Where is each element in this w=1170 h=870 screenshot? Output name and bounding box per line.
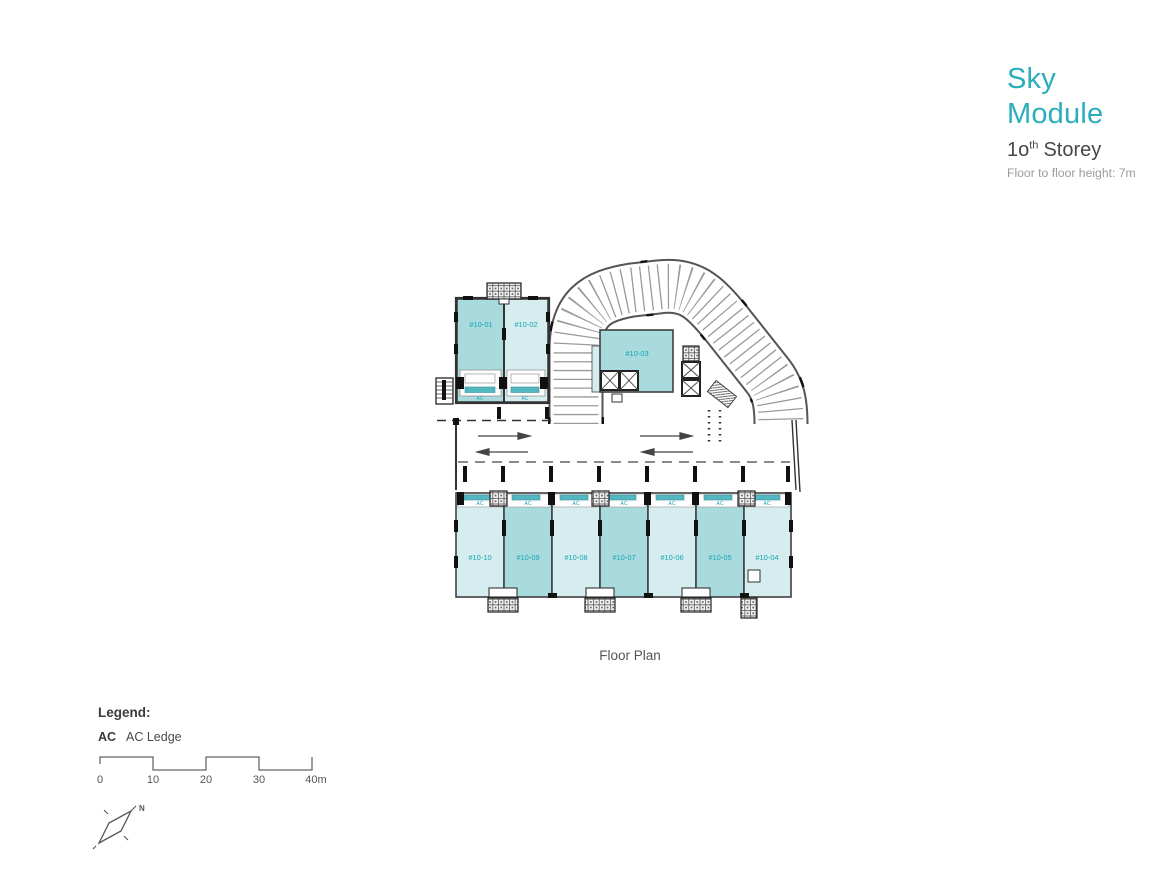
unit-label-10-01: #10-01 — [469, 320, 492, 329]
ac-ledge-label: AC — [522, 396, 529, 402]
top-block: AC AC #10-01 #10-02 — [436, 283, 550, 404]
scale-tick-30: 30 — [253, 774, 265, 786]
title-block: Sky Module 1othStorey Floor to floor hei… — [1007, 62, 1167, 180]
storey-title: 1othStorey — [1007, 139, 1167, 162]
ac-ledge-label: AC — [525, 501, 532, 507]
louver-grid — [592, 491, 609, 506]
legend-ac-label: AC Ledge — [126, 730, 182, 744]
lane-arrow-right — [478, 433, 530, 439]
scale-tick-10: 10 — [147, 774, 159, 786]
plan-caption: Floor Plan — [560, 648, 700, 663]
unit-10-09 — [504, 493, 552, 597]
scale-bar: 0 10 20 30 40m — [90, 748, 330, 790]
louver-grid — [487, 283, 521, 299]
louver-grid — [490, 491, 507, 506]
unit-label-10-09: #10-09 — [516, 553, 539, 562]
scale-tick-0: 0 — [97, 774, 103, 786]
lane-arrow-left-2 — [642, 449, 693, 455]
elevator-icon — [682, 362, 700, 378]
unit-label-10-08: #10-08 — [564, 553, 587, 562]
scale-tick-20: 20 — [200, 774, 212, 786]
ac-ledge-label: AC — [573, 501, 580, 507]
legend-title: Legend: — [98, 705, 151, 720]
unit-10-08 — [552, 493, 600, 597]
floor-height-note: Floor to floor height: 7m — [1007, 166, 1167, 180]
project-title-line1: Sky — [1007, 62, 1167, 97]
elevator-icon — [601, 371, 619, 390]
ac-ledge-label: AC — [477, 501, 484, 507]
bottom-block: AC AC AC AC AC AC AC #10-10 #10-09 #10- — [454, 491, 793, 618]
legend-ac-abbr: AC — [98, 730, 126, 744]
unit-label-10-06: #10-06 — [660, 553, 683, 562]
unit-label-10-05: #10-05 — [708, 553, 731, 562]
legend-item-ac: AC AC Ledge — [98, 730, 182, 744]
unit-10-10 — [456, 493, 504, 597]
unit-label-10-03: #10-03 — [625, 349, 648, 358]
stair-icon — [707, 380, 736, 407]
louver-grid — [488, 598, 518, 612]
louver-grid — [683, 346, 699, 361]
scale-tick-40: 40m — [305, 774, 326, 786]
unit-10-05 — [696, 493, 744, 597]
project-title-line2: Module — [1007, 97, 1167, 132]
elevator-icon — [682, 380, 700, 396]
elevator-icon — [620, 371, 638, 390]
unit-label-10-07: #10-07 — [612, 553, 635, 562]
floor-plan: AC AC #10-01 #10-02 #10-03 — [430, 250, 815, 625]
lane-arrow-left — [477, 449, 528, 455]
ac-ledge-label: AC — [477, 396, 484, 402]
lane-arrow-right-2 — [640, 433, 692, 439]
north-arrow-icon: N — [85, 798, 147, 856]
louver-grid — [741, 598, 757, 618]
unit-10-07 — [600, 493, 648, 597]
ac-ledge-label: AC — [621, 501, 628, 507]
ac-ledge-label: AC — [764, 501, 771, 507]
ac-ledge-label: AC — [669, 501, 676, 507]
louver-grid — [585, 598, 615, 612]
driveway — [437, 407, 800, 492]
ac-ledge-label: AC — [717, 501, 724, 507]
unit-label-10-02: #10-02 — [514, 320, 537, 329]
stair-icon — [436, 378, 453, 404]
unit-label-10-10: #10-10 — [468, 553, 491, 562]
unit-label-10-04: #10-04 — [755, 553, 778, 562]
north-label: N — [139, 804, 145, 813]
louver-grid — [738, 491, 755, 506]
louver-grid — [681, 598, 711, 612]
unit-10-06 — [648, 493, 696, 597]
